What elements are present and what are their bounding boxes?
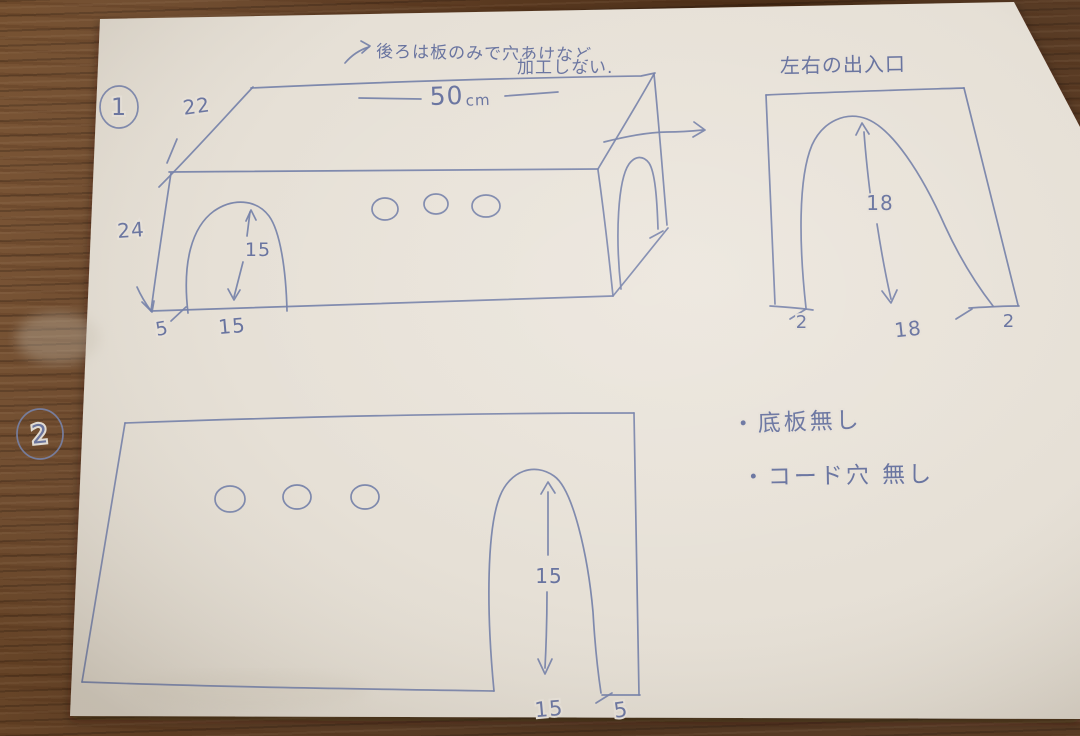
sketch-svg: 1 22 24 50cm 後ろは板のみで穴あけなど 加工しない. 15 15 5… — [0, 0, 1080, 736]
photo-vignette — [0, 0, 1080, 736]
photo-scene: 1 22 24 50cm 後ろは板のみで穴あけなど 加工しない. 15 15 5… — [0, 0, 1080, 736]
